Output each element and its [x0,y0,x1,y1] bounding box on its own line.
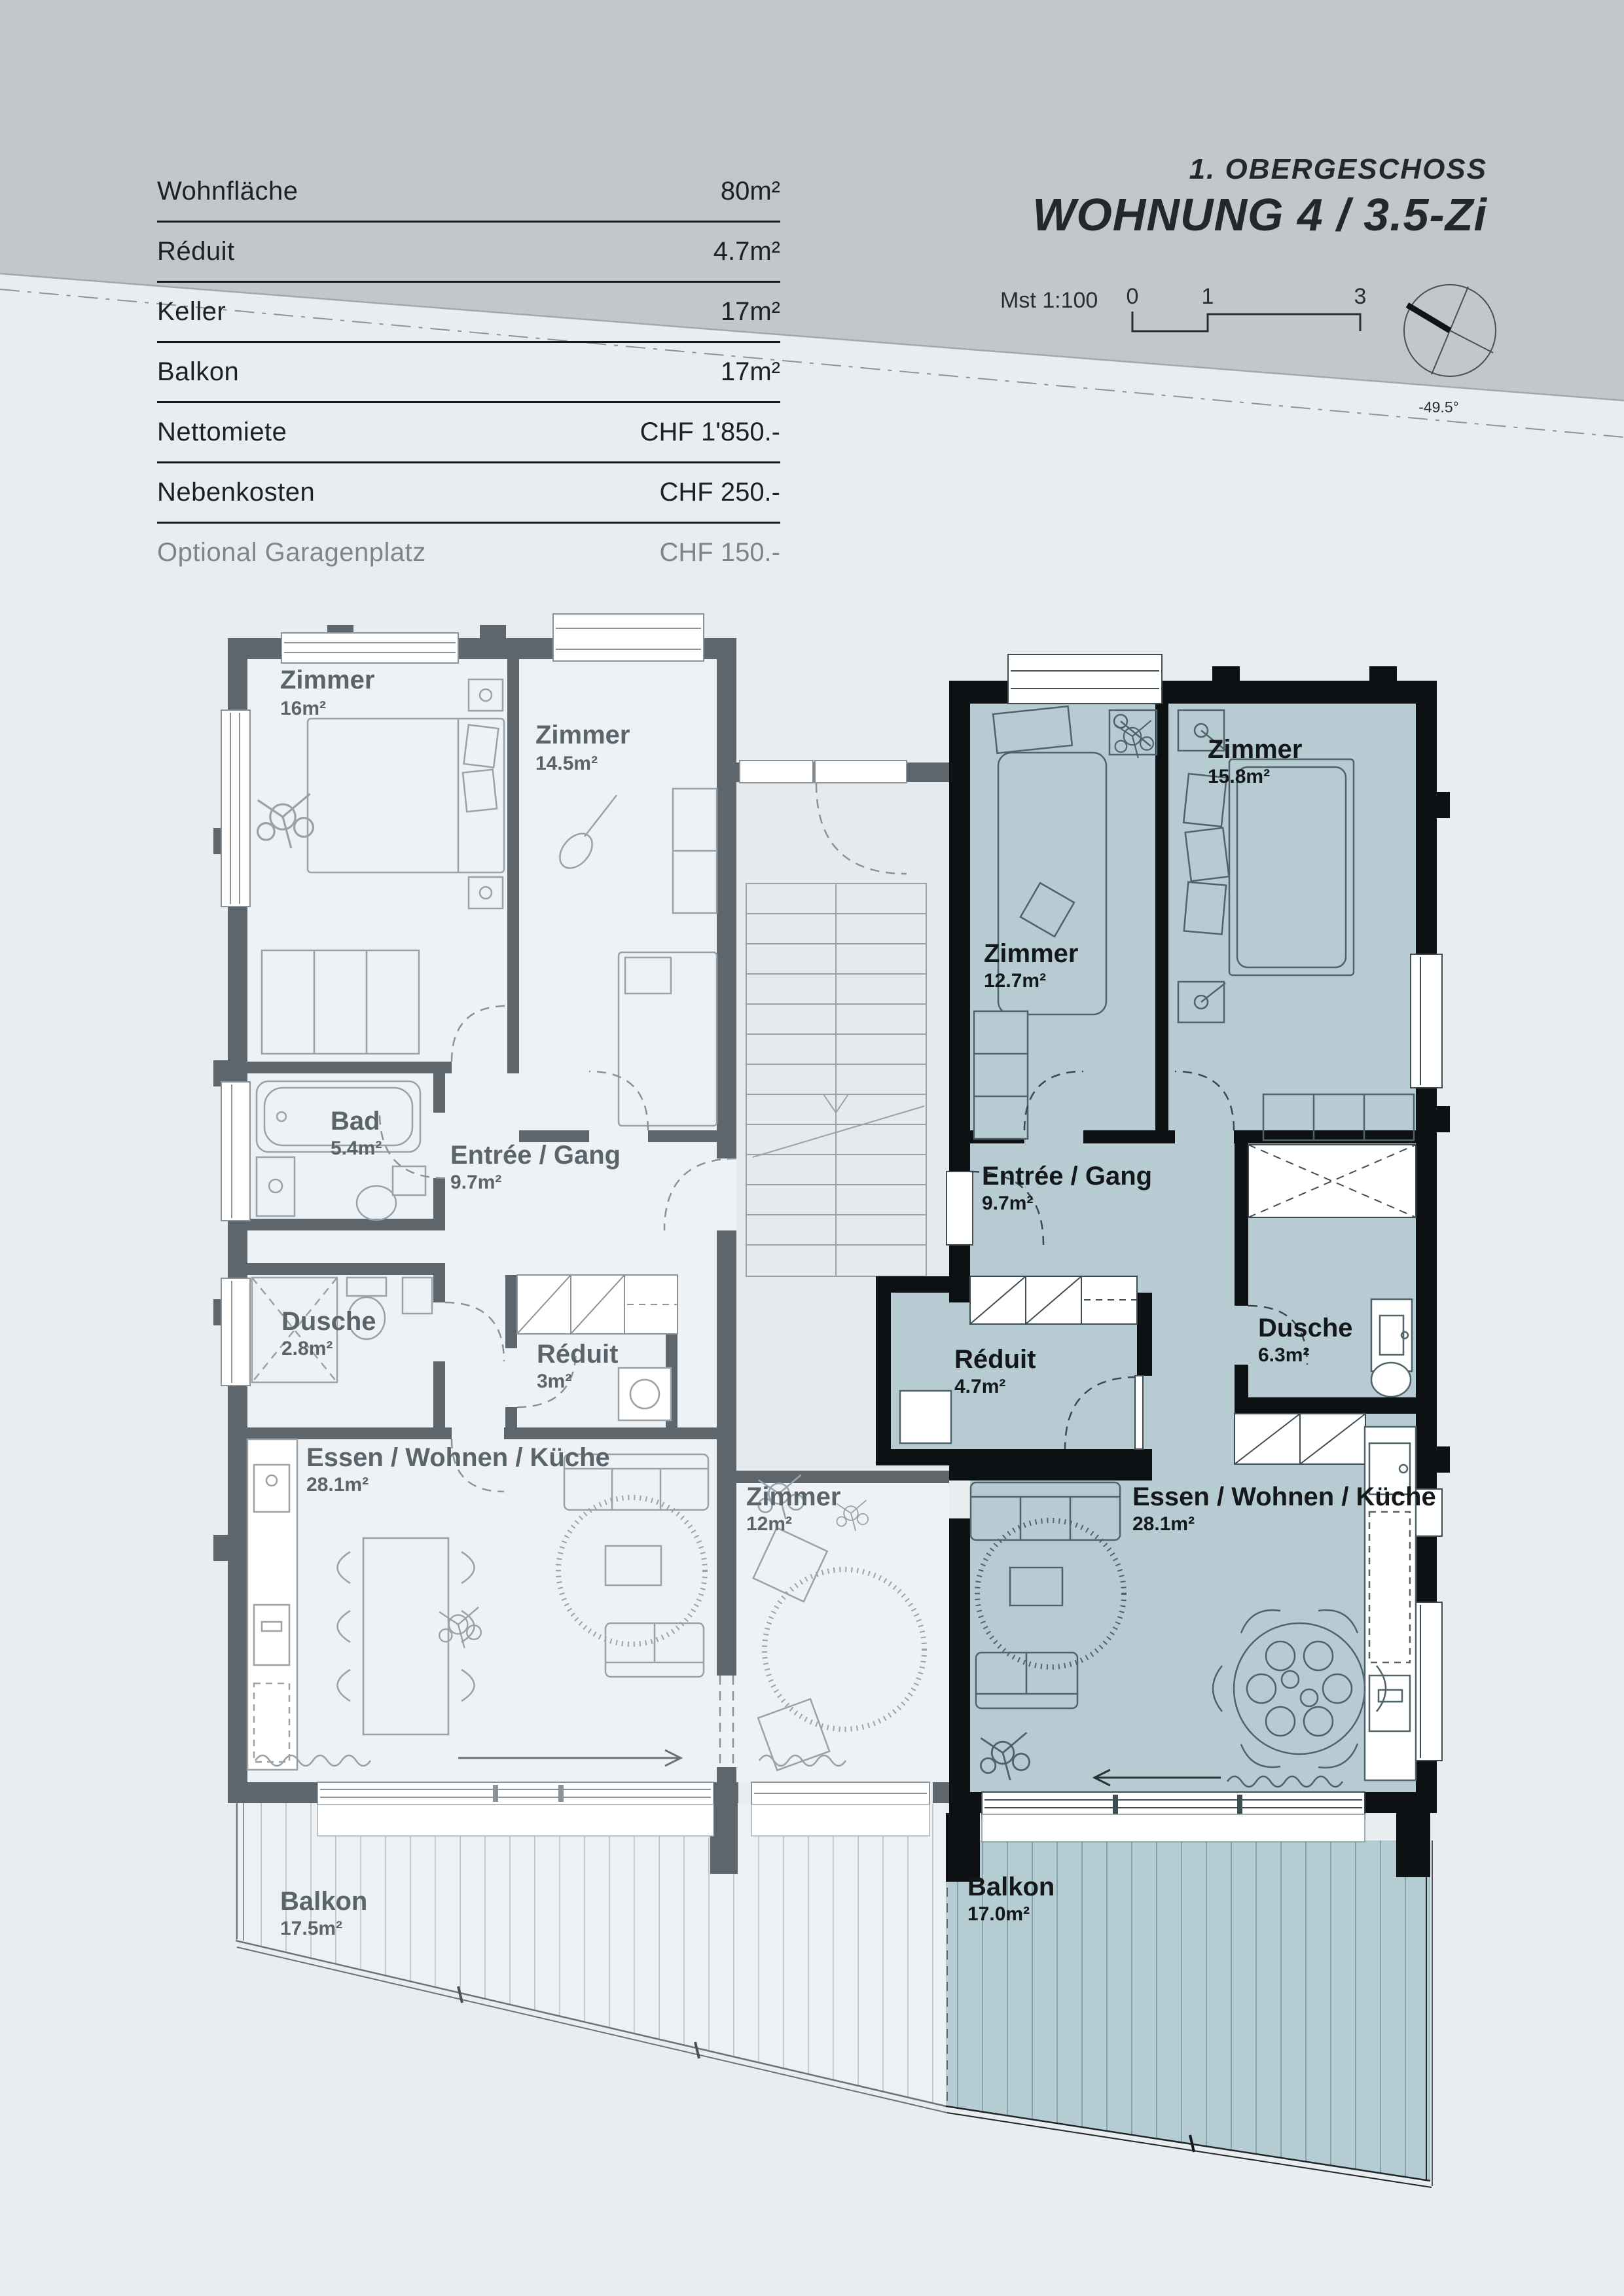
room-area: 17.5m² [280,1918,342,1939]
kitchen-right [1365,1427,1416,1780]
closet-left-reduit [517,1275,677,1334]
room-area: 12.7m² [984,970,1046,992]
closet-right-reduit [970,1276,1137,1324]
row-value: 4.7m² [713,237,780,266]
compass-angle: -49.5° [1418,399,1459,416]
room-area: 4.7m² [954,1376,1005,1397]
room-label: Essen / Wohnen / Küche [306,1443,610,1472]
room-area: 28.1m² [1132,1513,1195,1535]
room-area: 5.4m² [331,1138,382,1159]
right-apartment-floor [970,704,1416,1792]
room-label: Dusche [281,1307,376,1336]
row-label: Optional Garagenplatz [157,538,426,567]
scale-bar: 0 1 3 [1113,280,1388,339]
washer-reduit-left [619,1368,671,1420]
room-area: 6.3m² [1258,1344,1309,1366]
row-label: Wohnfläche [157,177,298,206]
row-label: Keller [157,297,226,327]
room-label: Zimmer [984,939,1079,968]
room-label: Essen / Wohnen / Küche [1132,1482,1436,1511]
table-row: Balkon 17m² [157,343,780,403]
room-label: Balkon [967,1873,1055,1901]
row-value: 17m² [721,357,780,387]
room-area: 15.8m² [1208,766,1270,787]
floorplan-brochure-page: Wohnfläche 80m² Réduit 4.7m² Keller 17m²… [0,0,1624,2296]
compass-icon: -49.5° [1386,268,1517,422]
room-label: Zimmer [280,666,375,694]
room-label: Balkon [280,1887,367,1916]
apartment-info-table: Wohnfläche 80m² Réduit 4.7m² Keller 17m²… [157,162,780,582]
room-label: Bad [331,1107,380,1136]
table-row-optional: Optional Garagenplatz CHF 150.- [157,524,780,582]
scale-tick: 0 [1127,284,1139,309]
shower-glass-dusche-right [1248,1145,1416,1217]
page-title: WOHNUNG 4 / 3.5-Zi [1032,188,1487,241]
kitchen-left [247,1439,297,1770]
room-area: 12m² [746,1513,792,1535]
room-area: 3m² [537,1371,571,1392]
balcony-left [236,1803,947,2113]
row-label: Balkon [157,357,239,387]
row-label: Nebenkosten [157,478,315,507]
scale-tick: 3 [1354,284,1367,309]
closet-right-living [1235,1414,1365,1464]
table-row: Keller 17m² [157,283,780,343]
scale-tick: 1 [1202,284,1214,309]
room-label: Entrée / Gang [450,1141,621,1170]
row-value: 17m² [721,297,780,327]
room-label: Entrée / Gang [982,1162,1152,1191]
row-value: CHF 150.- [660,538,781,567]
row-value: 80m² [721,177,780,206]
floor-plan: Zimmer 16m² Zimmer 14.5m² Bad 5.4m² Entr… [209,609,1466,2206]
row-label: Réduit [157,237,235,266]
room-label: Dusche [1258,1314,1353,1342]
room-label: Réduit [954,1345,1036,1374]
room-area: 9.7m² [982,1193,1033,1214]
row-value: CHF 250.- [660,478,781,507]
fixtures-dusche-right [1371,1299,1412,1397]
room-label: Zimmer [535,721,630,749]
floor-label: 1. OBERGESCHOSS [1189,153,1487,186]
row-label: Nettomiete [157,418,287,447]
scale-label: Mst 1:100 [1000,288,1098,314]
table-row: Nettomiete CHF 1'850.- [157,403,780,463]
washer-reduit-right [900,1391,951,1443]
room-area: 28.1m² [306,1474,369,1496]
table-row: Réduit 4.7m² [157,223,780,283]
compass-needle [1407,305,1450,331]
table-row: Wohnfläche 80m² [157,162,780,223]
room-area: 2.8m² [281,1338,333,1359]
room-label: Zimmer [1208,735,1303,764]
room-area: 16m² [280,698,326,719]
room-area: 9.7m² [450,1172,501,1193]
row-value: CHF 1'850.- [640,418,780,447]
room-label: Réduit [537,1340,618,1369]
room-label: Zimmer [746,1482,841,1511]
scale-bar-steps [1132,312,1360,331]
room-area: 14.5m² [535,753,598,774]
table-row: Nebenkosten CHF 250.- [157,463,780,524]
room-area: 17.0m² [967,1903,1030,1925]
